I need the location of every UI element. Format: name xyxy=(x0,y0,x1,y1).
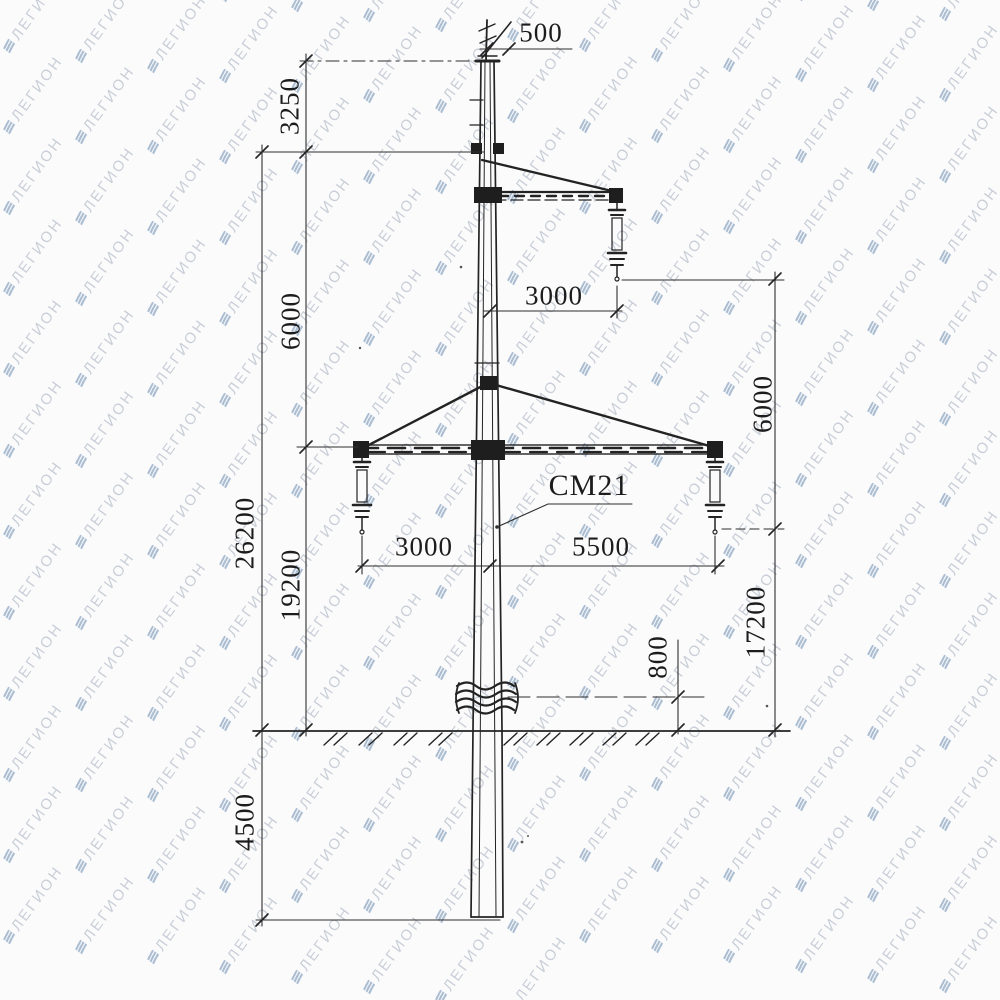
dimension-lines xyxy=(256,49,784,926)
scan-specks xyxy=(359,266,769,844)
dimension-ticks xyxy=(256,43,781,926)
pole-drawing xyxy=(0,0,1000,1000)
lower-insulator-right xyxy=(706,458,724,534)
upper-insulator xyxy=(608,203,626,281)
lower-insulator-left xyxy=(353,458,371,534)
pole-joint-coupling xyxy=(456,683,518,714)
lower-crossarm xyxy=(353,376,723,460)
ground-line xyxy=(253,731,790,745)
upper-crossarm xyxy=(471,143,623,203)
scanned-drawing-page: ЛЕГИОНЛЕГИОНЛЕГИОНЛЕГИОНЛЕГИОНЛЕГИОНЛЕГИ… xyxy=(0,0,1000,1000)
